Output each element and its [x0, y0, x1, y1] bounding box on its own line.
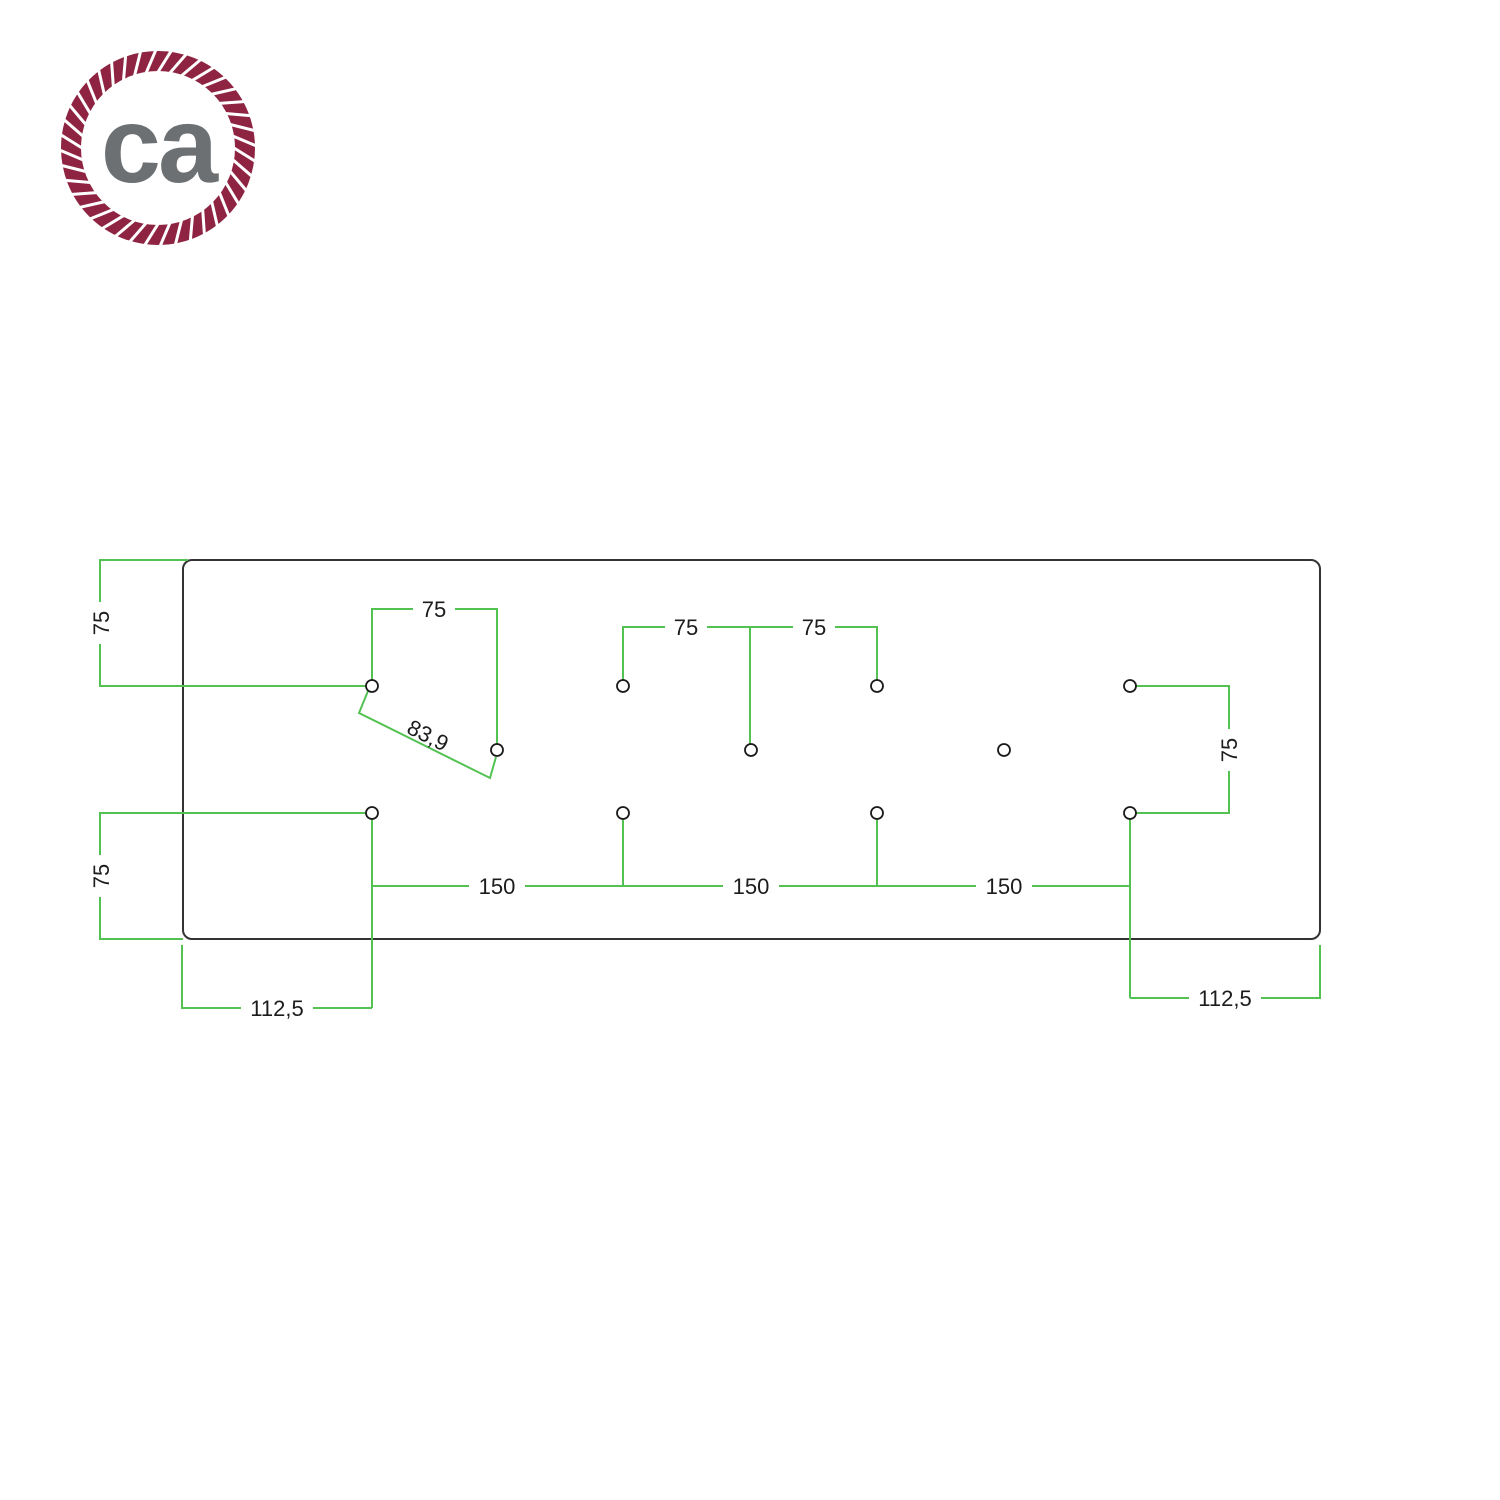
svg-text:75: 75: [89, 864, 114, 888]
dim-label-bottom-span-1: 150: [469, 873, 525, 899]
svg-text:75: 75: [674, 615, 698, 640]
svg-text:75: 75: [802, 615, 826, 640]
ceiling-rose-drilling-drawing: 75 75 83,9 75 75 75: [0, 0, 1500, 1500]
svg-text:75: 75: [1217, 738, 1242, 762]
dim-label-bottom-span-3: 150: [976, 873, 1032, 899]
svg-text:75: 75: [89, 611, 114, 635]
svg-text:112,5: 112,5: [1198, 986, 1251, 1011]
dim-label-center-span-left-75: 75: [665, 614, 707, 640]
cable-hole: [617, 680, 629, 692]
cable-hole: [491, 744, 503, 756]
dim-label-offset-right-112-5: 112,5: [1189, 985, 1261, 1011]
dim-label-center-span-right-75: 75: [793, 614, 835, 640]
cable-hole: [871, 680, 883, 692]
svg-text:112,5: 112,5: [250, 996, 303, 1021]
dim-label-bottom-span-2: 150: [723, 873, 779, 899]
svg-text:150: 150: [986, 874, 1023, 899]
cable-hole: [745, 744, 757, 756]
svg-text:150: 150: [479, 874, 516, 899]
cable-hole: [1124, 807, 1136, 819]
svg-text:75: 75: [422, 597, 446, 622]
cable-hole: [998, 744, 1010, 756]
product-dimension-diagram-page: ca: [0, 0, 1500, 1500]
dim-label-bottom-left-75: 75: [88, 855, 114, 897]
cable-hole: [366, 807, 378, 819]
dim-label-top-left-75: 75: [88, 602, 114, 644]
cable-hole: [1124, 680, 1136, 692]
svg-text:150: 150: [733, 874, 770, 899]
dim-label-right-75: 75: [1216, 729, 1242, 771]
dim-label-top-span-75: 75: [413, 596, 455, 622]
cable-hole: [617, 807, 629, 819]
cable-hole: [366, 680, 378, 692]
cable-hole: [871, 807, 883, 819]
dim-label-offset-left-112-5: 112,5: [241, 995, 313, 1021]
